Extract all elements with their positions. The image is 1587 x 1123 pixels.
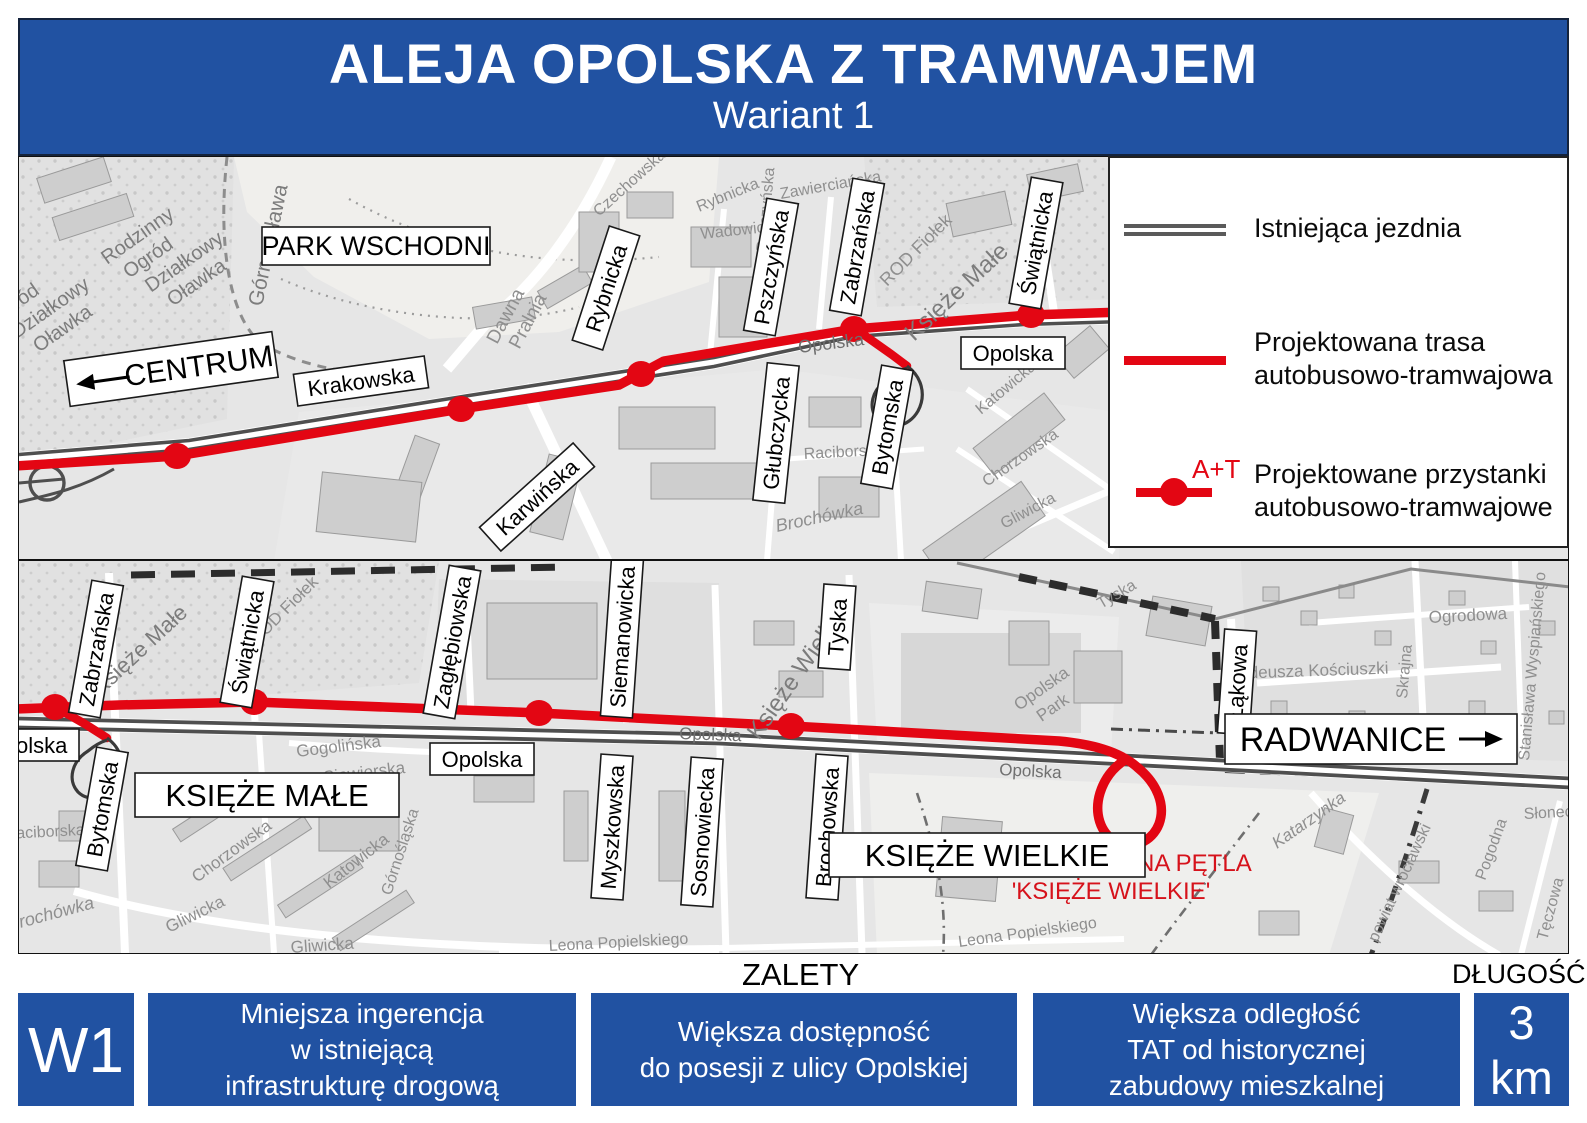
map-bg-label: Gliwicka: [290, 934, 355, 954]
legend-label: Istniejąca jezdnia: [1254, 212, 1461, 245]
label-opolska-west: Opolska: [19, 729, 79, 761]
map-bg-label: Słoneczna: [1523, 802, 1569, 823]
street-label: Opolska: [19, 733, 68, 758]
legend-label: Projektowane przystanki: [1254, 458, 1547, 491]
planned-stop-dot: [1160, 478, 1188, 506]
bus-tram-stop-dot: [41, 694, 69, 720]
label-radwanice: RADWANICE: [1225, 714, 1517, 764]
map-legend: Istniejąca jezdnia Projektowana trasa au…: [1108, 156, 1569, 548]
stop-code-label: A+T: [1192, 454, 1240, 485]
planned-route-symbol: [1124, 356, 1226, 365]
label-ksieze-wielkie: KSIĘŻE WIELKIE: [829, 833, 1145, 877]
map-bg-label: Opolska: [999, 760, 1063, 782]
length-value-box: 3 km: [1474, 993, 1569, 1106]
map-panel-south: ROD Fiołek Księże Małe Gogolińska Siewie…: [18, 560, 1569, 954]
advantage-box-3: Większa odległość TAT od historycznej za…: [1033, 993, 1460, 1106]
loop-note-line2: 'KSIĘŻE WIELKIE': [1012, 878, 1211, 905]
street-label: Opolska: [442, 747, 523, 772]
bus-tram-stop-dot: [447, 396, 475, 422]
label-ksieze-male: KSIĘŻE MAŁE: [135, 773, 399, 817]
direction-label: RADWANICE: [1240, 721, 1447, 759]
label-park-wschodni: PARK WSCHODNI: [261, 227, 490, 265]
advantage-line: Większa odległość: [1033, 996, 1460, 1032]
advantage-line: TAT od historycznej: [1033, 1032, 1460, 1068]
label-opolska-center: Opolska: [430, 743, 534, 775]
length-title: DŁUGOŚĆ: [1452, 959, 1586, 990]
district-label: PARK WSCHODNI: [261, 231, 490, 261]
advantage-box-2: Większa dostępność do posesji z ulicy Op…: [591, 993, 1017, 1106]
advantage-line: Większa dostępność: [591, 1014, 1017, 1050]
map-south-svg: ROD Fiołek Księże Małe Gogolińska Siewie…: [19, 561, 1569, 954]
district-label: KSIĘŻE WIELKIE: [865, 838, 1110, 873]
length-value: 3 km: [1474, 995, 1569, 1105]
street-label: Łąkowa: [1222, 643, 1252, 721]
page-title: ALEJA OPOLSKA Z TRAMWAJEM: [20, 34, 1567, 94]
infographic-page: ALEJA OPOLSKA Z TRAMWAJEM Wariant 1: [0, 0, 1587, 1123]
map-bg-label: Opolska: [679, 724, 743, 745]
header-banner: ALEJA OPOLSKA Z TRAMWAJEM Wariant 1: [18, 18, 1569, 156]
advantage-line: do posesji z ulicy Opolskiej: [591, 1050, 1017, 1086]
advantage-line: zabudowy mieszkalnej: [1033, 1068, 1460, 1104]
bus-tram-stop-dot: [163, 443, 191, 469]
bus-tram-stop-dot: [525, 700, 553, 726]
advantage-box-1: Mniejsza ingerencja w istniejącą infrast…: [148, 993, 576, 1106]
advantages-title: ZALETY: [742, 957, 859, 993]
legend-label: autobusowo-tramwajowe: [1254, 491, 1553, 524]
advantage-line: Mniejsza ingerencja: [148, 996, 576, 1032]
bus-tram-stop-dot: [627, 361, 655, 387]
street-label: Tyska: [823, 597, 852, 657]
advantage-line: w istniejącą: [148, 1032, 576, 1068]
advantage-line: infrastrukturę drogową: [148, 1068, 576, 1104]
existing-road-symbol: [1124, 232, 1226, 236]
legend-label: autobusowo-tramwajowa: [1254, 359, 1553, 392]
legend-label: Projektowana trasa: [1254, 326, 1485, 359]
district-label: KSIĘŻE MAŁE: [165, 778, 368, 813]
label-tyska: Tyska: [818, 584, 856, 670]
variant-code-box: W1: [18, 993, 134, 1106]
street-label: Opolska: [973, 341, 1054, 366]
page-subtitle: Wariant 1: [20, 94, 1567, 138]
variant-code: W1: [18, 1013, 134, 1087]
label-opolska: Opolska: [961, 337, 1065, 369]
existing-road-symbol: [1124, 224, 1226, 228]
